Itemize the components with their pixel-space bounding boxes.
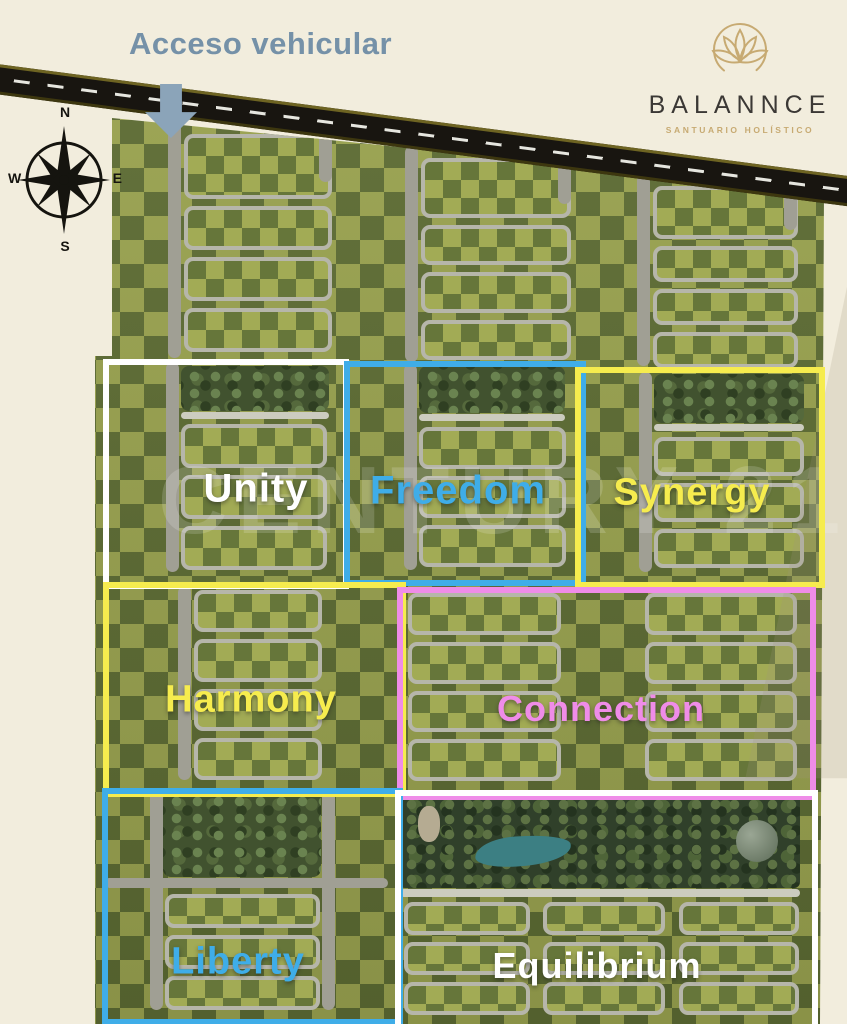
parcel-block	[184, 134, 332, 352]
street	[405, 146, 418, 362]
balance-logo: BALANNCE SANTUARIO HOLÍSTICO	[648, 20, 832, 135]
parcel	[184, 257, 332, 301]
section-label-harmony: Harmony	[165, 679, 337, 722]
compass-north: N	[60, 104, 70, 120]
parcel-block	[653, 186, 798, 368]
compass-rose: N E S W	[8, 106, 122, 252]
compass-west: W	[8, 170, 21, 186]
parcel-block	[421, 158, 571, 360]
brand-tagline: SANTUARIO HOLÍSTICO	[648, 125, 832, 135]
street	[637, 174, 650, 366]
parcel	[653, 332, 798, 368]
section-label-synergy: Synergy	[614, 472, 771, 515]
street	[168, 122, 181, 358]
compass-south: S	[60, 238, 69, 254]
parcel	[184, 308, 332, 352]
section-box-equilibrium	[395, 790, 818, 1024]
parcel	[184, 134, 332, 199]
parcel	[184, 206, 332, 250]
section-label-connection: Connection	[497, 688, 705, 730]
parcel	[421, 225, 571, 265]
lotus-icon	[705, 20, 775, 84]
section-label-freedom: Freedom	[370, 469, 546, 514]
section-box-liberty	[102, 788, 403, 1024]
vehicular-access-label: Acceso vehicular	[129, 26, 392, 62]
brand-wordmark: BALANNCE	[648, 91, 832, 120]
parcel	[653, 289, 798, 325]
section-label-equilibrium: Equilibrium	[493, 945, 702, 987]
section-label-unity: Unity	[204, 467, 309, 512]
compass-east: E	[113, 170, 122, 186]
parcel	[421, 320, 571, 360]
masterplan-poster: Acceso vehicular BALANNCE SANTUARIO HOLÍ…	[0, 0, 847, 1024]
section-label-liberty: Liberty	[171, 941, 305, 984]
parcel	[653, 246, 798, 282]
compass-star-icon	[8, 106, 122, 252]
parcel	[421, 272, 571, 312]
